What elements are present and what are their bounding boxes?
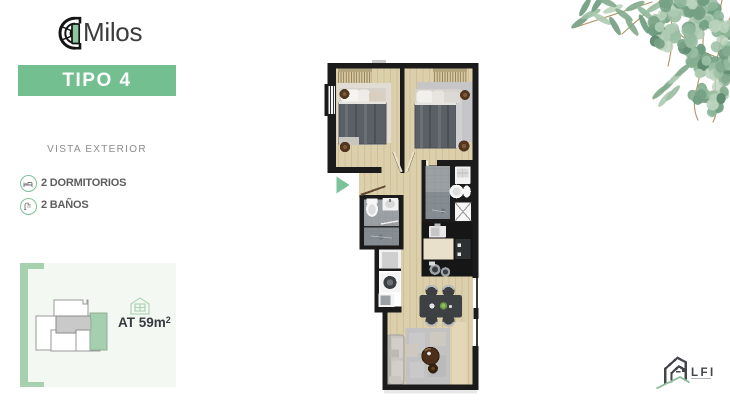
svg-text:LFI: LFI: [691, 367, 716, 379]
